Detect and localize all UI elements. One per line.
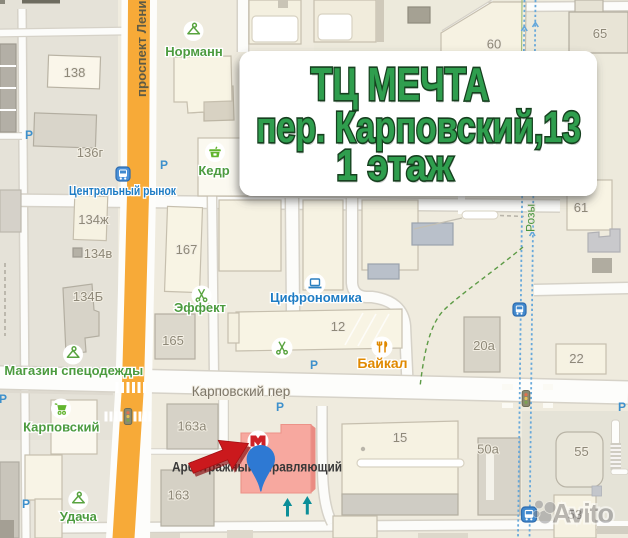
svg-text:163а: 163а bbox=[178, 419, 208, 434]
svg-text:12: 12 bbox=[331, 319, 345, 334]
svg-text:Норманн: Норманн bbox=[165, 44, 222, 59]
svg-text:Карповский: Карповский bbox=[23, 420, 99, 435]
svg-text:P: P bbox=[0, 392, 7, 406]
svg-text:165: 165 bbox=[162, 333, 184, 348]
svg-text:P: P bbox=[276, 400, 284, 414]
svg-text:55: 55 bbox=[574, 444, 588, 459]
svg-text:65: 65 bbox=[593, 26, 607, 41]
svg-text:P: P bbox=[25, 128, 33, 142]
svg-text:136г: 136г bbox=[77, 145, 104, 160]
svg-text:Кедр: Кедр bbox=[198, 163, 229, 178]
svg-text:134ж: 134ж bbox=[78, 212, 109, 227]
svg-text:Эффект: Эффект bbox=[174, 300, 226, 315]
svg-text:P: P bbox=[618, 400, 626, 414]
svg-text:15: 15 bbox=[393, 430, 407, 445]
svg-text:P: P bbox=[160, 158, 168, 172]
svg-text:163: 163 bbox=[168, 488, 190, 503]
svg-text:Avito: Avito bbox=[552, 499, 614, 529]
svg-text:20а: 20а bbox=[473, 338, 495, 353]
svg-text:22: 22 bbox=[569, 351, 583, 366]
svg-text:Центральный рынок: Центральный рынок bbox=[69, 183, 176, 198]
svg-text:Карповский пер: Карповский пер bbox=[192, 384, 291, 399]
svg-text:134в: 134в bbox=[84, 246, 113, 261]
svg-text:Розы: Розы bbox=[524, 204, 538, 232]
svg-text:Байкал: Байкал bbox=[357, 355, 407, 371]
svg-text:167: 167 bbox=[176, 242, 198, 257]
svg-text:61: 61 bbox=[574, 200, 588, 215]
svg-text:P: P bbox=[22, 497, 30, 511]
svg-text:138: 138 bbox=[64, 65, 86, 80]
svg-text:Цифрономика: Цифрономика bbox=[270, 290, 362, 305]
svg-text:134Б: 134Б bbox=[73, 289, 103, 304]
svg-text:проспект Ленина: проспект Ленина bbox=[135, 0, 149, 97]
svg-text:60: 60 bbox=[487, 37, 501, 52]
svg-text:Удача: Удача bbox=[60, 509, 98, 524]
svg-text:P: P bbox=[310, 358, 318, 372]
svg-text:1 этаж: 1 этаж bbox=[336, 141, 454, 190]
svg-text:50а: 50а bbox=[477, 442, 499, 457]
svg-text:Магазин спецодежды: Магазин спецодежды bbox=[4, 363, 143, 378]
